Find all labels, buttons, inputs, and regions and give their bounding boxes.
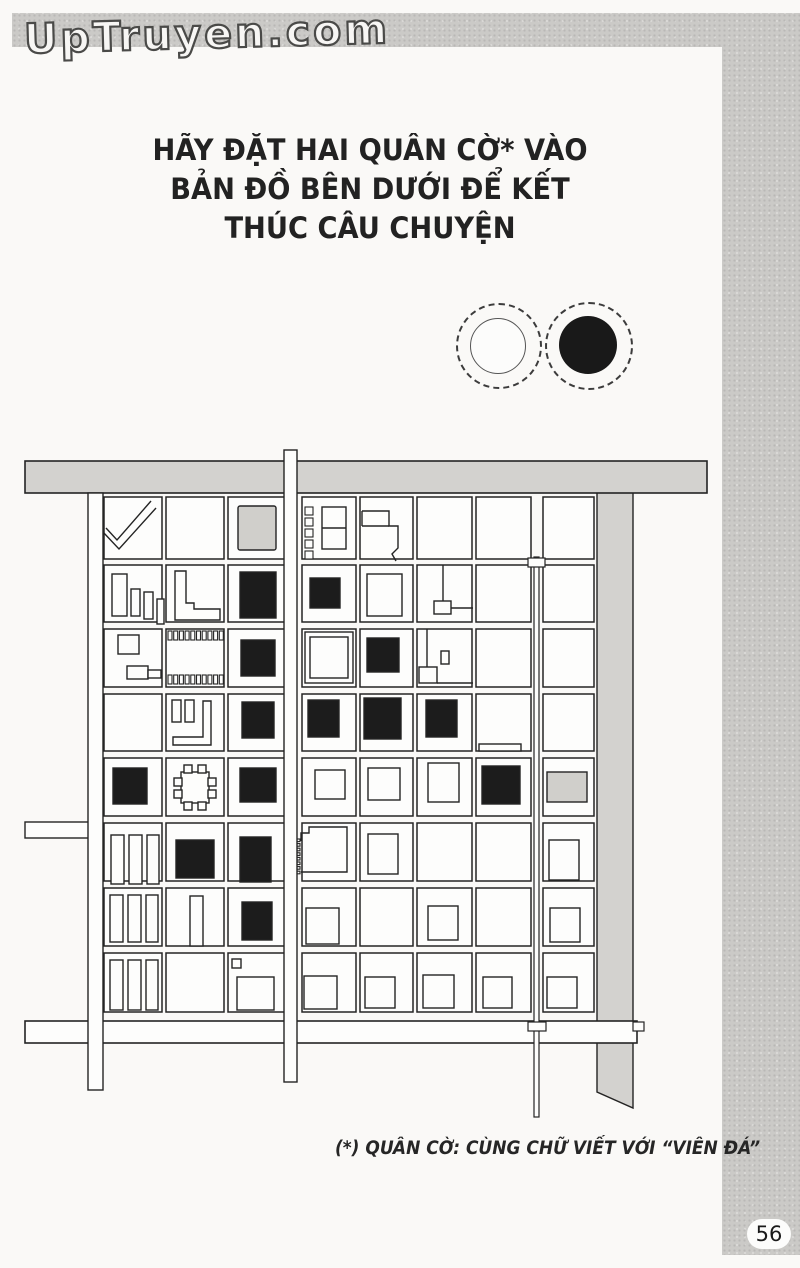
building-r8c5	[365, 977, 395, 1008]
west-branch-road	[25, 822, 91, 838]
building-r6c1	[111, 835, 124, 884]
building-r5c2	[184, 765, 192, 773]
building-r5c6	[428, 763, 459, 802]
building-r1c4	[305, 540, 313, 548]
building-r3c2	[202, 675, 206, 684]
building-r2c1	[131, 589, 140, 616]
building-r3c6	[419, 667, 437, 683]
building-r4c5	[364, 698, 401, 739]
footnote: (*) QUÂN CỜ: CÙNG CHỮ VIẾT VỚI “VIÊN ĐÁ”	[335, 1138, 760, 1159]
building-r3c1	[148, 670, 161, 678]
top-road	[25, 461, 707, 493]
building-r8c6	[423, 975, 454, 1008]
map-block-r7c5[interactable]	[360, 888, 413, 946]
map-block-r1c7[interactable]	[476, 497, 531, 559]
building-r2c5	[367, 574, 402, 616]
building-r8c4	[304, 976, 337, 1009]
building-r8c8	[547, 977, 577, 1008]
building-r5c2	[181, 772, 209, 803]
building-r4c4	[308, 700, 339, 737]
map-block-r7c7[interactable]	[476, 888, 531, 946]
map-block-r8c2[interactable]	[166, 953, 224, 1012]
building-r2c3	[240, 572, 276, 618]
page-number: 56	[756, 1222, 783, 1246]
page-number-badge: 56	[747, 1219, 791, 1249]
building-r3c2	[191, 631, 195, 640]
building-r7c8	[550, 908, 580, 942]
building-r1c4	[305, 507, 313, 515]
scanned-manga-page: { "site": { "logo": "UpTruyen.com" }, "p…	[0, 0, 800, 1268]
building-r8c1	[146, 960, 158, 1010]
building-r1c4	[305, 529, 313, 537]
east-gray-road	[597, 470, 633, 1108]
building-r2c6	[434, 601, 451, 614]
building-r3c2	[179, 631, 183, 640]
building-r6c8	[549, 840, 579, 880]
building-r8c1	[128, 960, 141, 1010]
map-block-r1c8[interactable]	[543, 497, 594, 559]
building-r8c3	[237, 977, 274, 1010]
building-r2c1	[157, 599, 164, 624]
building-r3c2	[219, 675, 223, 684]
building-r7c4	[306, 908, 339, 944]
building-r7c2	[190, 896, 203, 946]
building-r5c2	[184, 802, 192, 810]
building-r4c7	[479, 744, 521, 751]
building-r3c4	[310, 637, 348, 678]
map-block-r4c1[interactable]	[104, 694, 162, 751]
map-block-r6c6[interactable]	[417, 823, 472, 881]
building-r1c4	[305, 518, 313, 526]
building-r7c6	[428, 906, 458, 940]
building-r3c2	[208, 675, 212, 684]
building-r2c1	[144, 592, 153, 619]
building-r6c1	[147, 835, 159, 884]
building-r3c2	[179, 675, 183, 684]
building-r3c1	[127, 666, 148, 679]
map-block-r2c8[interactable]	[543, 565, 594, 622]
building-r3c2	[191, 675, 195, 684]
building-r3c2	[197, 631, 201, 640]
building-r5c1	[113, 768, 147, 804]
building-r3c2	[168, 631, 172, 640]
map-block-r6c7[interactable]	[476, 823, 531, 881]
map-block-r4c7[interactable]	[476, 694, 531, 751]
building-r5c2	[174, 790, 182, 798]
city-map[interactable]	[0, 0, 800, 1268]
building-r3c5	[367, 638, 399, 672]
building-r5c8	[547, 772, 587, 802]
building-r1c3	[238, 506, 276, 550]
building-r6c2	[176, 840, 214, 878]
building-r2c1	[112, 574, 127, 616]
map-block-r2c7[interactable]	[476, 565, 531, 622]
map-block-r1c6[interactable]	[417, 497, 472, 559]
map-block-r1c2[interactable]	[166, 497, 224, 559]
building-r4c2	[185, 700, 194, 722]
building-r8c1	[110, 960, 123, 1010]
map-block-r3c8[interactable]	[543, 629, 594, 687]
building-r5c4	[315, 770, 345, 799]
main-vertical-road	[284, 450, 297, 1082]
building-r5c2	[174, 778, 182, 786]
building-r5c2	[208, 778, 216, 786]
west-road	[88, 493, 103, 1090]
lane-node-bottom	[528, 1022, 546, 1031]
building-r7c1	[146, 895, 158, 942]
building-r3c3	[241, 640, 275, 676]
east-lane	[534, 557, 539, 1117]
building-r7c1	[110, 895, 123, 942]
bottom-road-stub	[633, 1022, 644, 1031]
building-r8c3	[232, 959, 241, 968]
map-block-r4c8[interactable]	[543, 694, 594, 751]
building-r5c5	[368, 768, 400, 800]
lane-node-top	[528, 558, 545, 567]
building-r3c2	[168, 675, 172, 684]
building-r3c2	[185, 675, 189, 684]
building-r5c2	[198, 802, 206, 810]
building-r3c2	[202, 631, 206, 640]
building-r5c7	[482, 766, 520, 804]
map-block-r1c5[interactable]	[360, 497, 413, 559]
building-r6c5	[368, 834, 398, 874]
building-r3c2	[197, 675, 201, 684]
building-r8c7	[483, 977, 512, 1008]
building-r1c4	[305, 551, 313, 559]
building-r3c2	[208, 631, 212, 640]
building-r5c2	[198, 765, 206, 773]
building-r7c3	[242, 902, 272, 940]
map-block-r1c1[interactable]	[104, 497, 162, 559]
building-r5c3	[240, 768, 276, 802]
building-r3c2	[174, 675, 178, 684]
building-r3c2	[214, 631, 218, 640]
building-r4c6	[426, 700, 457, 737]
building-r3c2	[185, 631, 189, 640]
building-r3c2	[219, 631, 223, 640]
building-r4c2	[172, 700, 181, 722]
building-r5c2	[208, 790, 216, 798]
building-r6c1	[129, 835, 142, 884]
building-r3c2	[214, 675, 218, 684]
building-r6c3	[240, 837, 271, 882]
building-r4c3	[242, 702, 274, 738]
building-r2c4	[310, 578, 340, 608]
map-block-r3c7[interactable]	[476, 629, 531, 687]
building-r3c2	[174, 631, 178, 640]
building-r3c6	[441, 651, 449, 664]
building-r3c1	[118, 635, 139, 654]
building-r7c1	[128, 895, 141, 942]
